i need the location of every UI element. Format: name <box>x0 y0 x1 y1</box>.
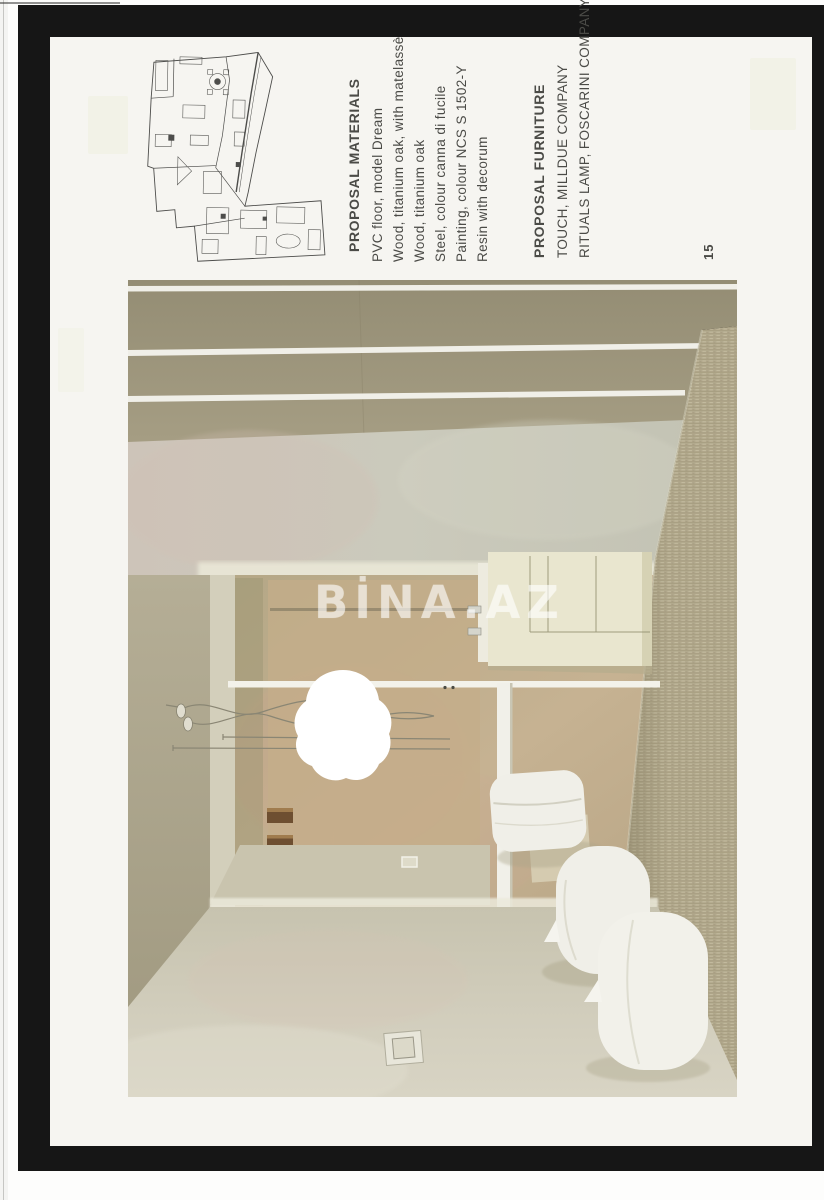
scanner-edge-line <box>3 0 4 1200</box>
materials-item: Wood, titanium oak, with matelassè <box>388 36 409 262</box>
materials-item: Painting, colour NCS S 1502-Y <box>451 36 472 262</box>
mount-frame-left <box>18 5 50 1171</box>
materials-title: PROPOSAL MATERIALS <box>344 36 365 262</box>
page-number: 15 <box>701 244 716 260</box>
scanned-page: PROPOSAL MATERIALS PVC floor, model Drea… <box>0 0 824 1200</box>
scanner-edge-strip <box>0 0 8 1200</box>
ceiling <box>128 280 737 440</box>
mount-frame-bottom <box>18 1146 824 1171</box>
mount-frame-top <box>18 5 824 37</box>
scan-ghost-patch <box>88 96 128 154</box>
floor-plan-outline <box>146 50 329 264</box>
render-detail-overlay <box>128 280 737 1097</box>
site-watermark: BİNA.AZ <box>314 576 565 629</box>
furniture-spec-block: PROPOSAL FURNITURE TOUCH, MILLDUE COMPAN… <box>528 0 596 258</box>
furniture-title: PROPOSAL FURNITURE <box>528 0 550 258</box>
materials-spec-block: PROPOSAL MATERIALS PVC floor, model Drea… <box>344 36 493 262</box>
scan-ghost-patch <box>750 58 796 130</box>
scan-ghost-patch <box>58 328 84 392</box>
shower-tray <box>210 845 490 905</box>
bathroom-render-image: BİNA.AZ <box>128 280 737 1097</box>
mount-frame-right <box>812 5 824 1167</box>
materials-item: Resin with decorum <box>472 36 493 262</box>
materials-item: Wood, titanium oak <box>409 36 430 262</box>
materials-item: PVC floor, model Dream <box>367 36 388 262</box>
materials-item: Steel, colour canna di fucile <box>430 36 451 262</box>
shower-drain <box>402 857 417 867</box>
scanner-top-line <box>0 2 120 4</box>
wall-tap <box>468 628 481 635</box>
floor-plan-drawing <box>136 38 337 270</box>
furniture-item: TOUCH, MILLDUE COMPANY <box>552 0 574 258</box>
furniture-item: RITUALS LAMP, FOSCARINI COMPANY <box>574 0 596 258</box>
switch-plate <box>384 1030 424 1065</box>
floor-plan-rooms <box>152 56 324 255</box>
